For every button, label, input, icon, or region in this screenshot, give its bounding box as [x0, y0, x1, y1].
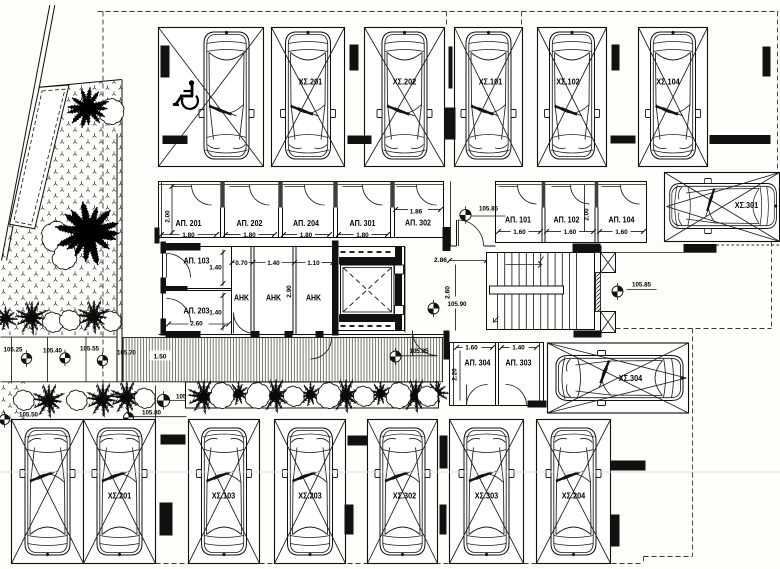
- svg-text:2.20: 2.20: [452, 368, 459, 381]
- svg-text:ΑΠ. 104: ΑΠ. 104: [609, 216, 635, 225]
- svg-text:105.85: 105.85: [479, 206, 498, 213]
- svg-text:ΧΣ.203: ΧΣ.203: [298, 492, 322, 501]
- svg-text:105.55: 105.55: [80, 346, 99, 353]
- svg-text:ΧΣ.301: ΧΣ.301: [735, 201, 759, 210]
- svg-text:ΑΗΚ: ΑΗΚ: [306, 294, 321, 303]
- svg-text:105.85: 105.85: [410, 348, 429, 355]
- svg-text:ΧΣ.303: ΧΣ.303: [475, 492, 499, 501]
- svg-text:ΧΣ.101: ΧΣ.101: [479, 78, 503, 87]
- svg-text:105.40: 105.40: [43, 348, 62, 355]
- svg-text:2.60: 2.60: [445, 286, 452, 299]
- svg-text:105.25: 105.25: [4, 347, 23, 354]
- svg-text:ΧΣ.302: ΧΣ.302: [393, 492, 417, 501]
- svg-text:ΑΠ. 204: ΑΠ. 204: [293, 219, 319, 228]
- svg-text:1.40: 1.40: [267, 260, 280, 267]
- svg-text:1.50: 1.50: [154, 354, 167, 361]
- svg-text:ΑΠ. 202: ΑΠ. 202: [237, 219, 263, 228]
- svg-text:2.00: 2.00: [165, 210, 172, 223]
- svg-text:2.86: 2.86: [434, 257, 447, 264]
- svg-text:2.00: 2.00: [584, 208, 591, 221]
- svg-text:1.60: 1.60: [465, 345, 478, 352]
- svg-text:105.50: 105.50: [19, 412, 38, 419]
- svg-text:ΧΣ.201: ΧΣ.201: [299, 78, 323, 87]
- svg-text:ΑΠ. 201: ΑΠ. 201: [176, 219, 202, 228]
- svg-text:ΧΣ.201: ΧΣ.201: [108, 492, 132, 501]
- svg-text:1.60: 1.60: [615, 229, 628, 236]
- svg-text:ΧΣ.204: ΧΣ.204: [562, 492, 586, 501]
- svg-text:ΑΗΚ: ΑΗΚ: [266, 294, 281, 303]
- svg-text:ΧΣ.104: ΧΣ.104: [656, 78, 680, 87]
- svg-text:2.90: 2.90: [286, 285, 293, 298]
- svg-text:1.80: 1.80: [243, 232, 256, 239]
- svg-text:1.40: 1.40: [209, 310, 222, 317]
- svg-text:0.70: 0.70: [235, 260, 248, 267]
- svg-text:1.40: 1.40: [512, 345, 525, 352]
- svg-text:2.60: 2.60: [190, 321, 203, 328]
- svg-text:1.40: 1.40: [209, 265, 222, 272]
- svg-text:ΑΠ. 304: ΑΠ. 304: [465, 359, 491, 368]
- svg-text:ΧΣ.304: ΧΣ.304: [619, 374, 643, 383]
- svg-text:1.60: 1.60: [564, 229, 577, 236]
- svg-text:ΧΣ.102: ΧΣ.102: [556, 78, 580, 87]
- svg-text:ΑΠ. 101: ΑΠ. 101: [505, 216, 531, 225]
- svg-text:ΑΠ. 103: ΑΠ. 103: [184, 257, 210, 266]
- svg-text:1.60: 1.60: [513, 229, 526, 236]
- svg-text:1.80: 1.80: [356, 232, 369, 239]
- svg-text:105.85: 105.85: [632, 282, 651, 289]
- svg-text:ΑΠ. 102: ΑΠ. 102: [554, 216, 580, 225]
- svg-text:ΑΠ. 301: ΑΠ. 301: [350, 219, 376, 228]
- svg-text:ΑΠ. 303: ΑΠ. 303: [506, 359, 532, 368]
- svg-text:1.80: 1.80: [182, 232, 195, 239]
- svg-text:105.90: 105.90: [448, 301, 467, 308]
- svg-text:1.80: 1.80: [300, 232, 313, 239]
- svg-text:1.10: 1.10: [307, 260, 320, 267]
- svg-text:ΧΣ.103: ΧΣ.103: [212, 492, 236, 501]
- svg-text:ΧΣ.202: ΧΣ.202: [393, 78, 417, 87]
- svg-text:105.80: 105.80: [142, 410, 161, 417]
- svg-text:ΑΗΚ: ΑΗΚ: [234, 294, 249, 303]
- svg-text:1.86: 1.86: [410, 209, 423, 216]
- svg-text:ΑΠ. 302: ΑΠ. 302: [405, 219, 431, 228]
